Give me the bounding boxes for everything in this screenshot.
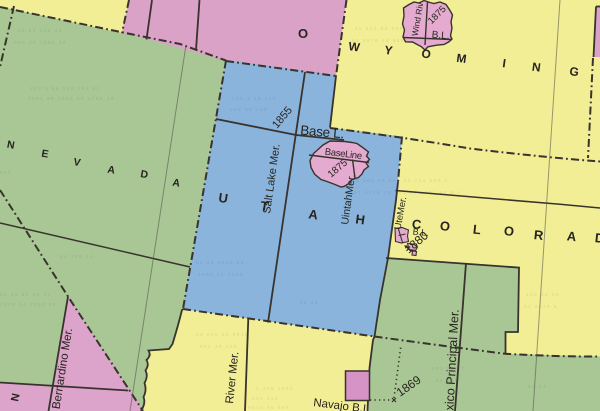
svg-text:108 3 88 150: 108 3 88 150 — [232, 96, 277, 101]
svg-text:G: G — [569, 64, 580, 79]
svg-text:948 310: 948 310 — [252, 396, 279, 401]
svg-text:2684 98 1893 64 4784 39: 2684 98 1893 64 4784 39 — [28, 96, 115, 101]
svg-text:L: L — [472, 222, 482, 238]
svg-text:84 108 44: 84 108 44 — [60, 254, 94, 259]
svg-text:O: O — [298, 26, 308, 41]
svg-text:1888 34 2038: 1888 34 2038 — [198, 272, 244, 277]
svg-text:58 503 98 503 33 733 504 3: 58 503 98 503 33 733 504 3 — [352, 178, 448, 183]
svg-text:94 48 64 88 31: 94 48 64 88 31 — [0, 292, 52, 297]
svg-text:94 84: 94 84 — [528, 384, 547, 389]
svg-text:888: 888 — [0, 170, 12, 175]
svg-text:1 348 4983: 1 348 4983 — [256, 386, 294, 391]
svg-text:994 38 408: 994 38 408 — [200, 344, 238, 349]
svg-text:M: M — [456, 51, 468, 66]
svg-text:O: O — [503, 223, 515, 239]
svg-text:D: D — [594, 230, 600, 246]
svg-text:O: O — [439, 218, 451, 234]
svg-text:81 54 108 36: 81 54 108 36 — [18, 28, 63, 33]
svg-text:B.L.: B.L. — [431, 30, 450, 43]
svg-text:960 34 1694 88: 960 34 1694 88 — [14, 40, 67, 45]
svg-text:1888 54 2058 96: 1888 54 2058 96 — [0, 302, 57, 307]
svg-text:80 948 50 9848: 80 948 50 9848 — [196, 332, 249, 337]
svg-text:103 86 50: 103 86 50 — [526, 292, 560, 297]
svg-text:103 3 88 120 164 52: 103 3 88 120 164 52 — [30, 86, 101, 91]
svg-text:94 9578 8: 94 9578 8 — [524, 304, 558, 309]
svg-text:58 88: 58 88 — [300, 300, 319, 305]
svg-text:O: O — [421, 46, 432, 61]
svg-text:9840 98 998: 9840 98 998 — [248, 405, 290, 410]
svg-text:84 58 9848 98: 84 58 9848 98 — [196, 260, 245, 265]
svg-text:268 98 189: 268 98 189 — [230, 107, 268, 112]
